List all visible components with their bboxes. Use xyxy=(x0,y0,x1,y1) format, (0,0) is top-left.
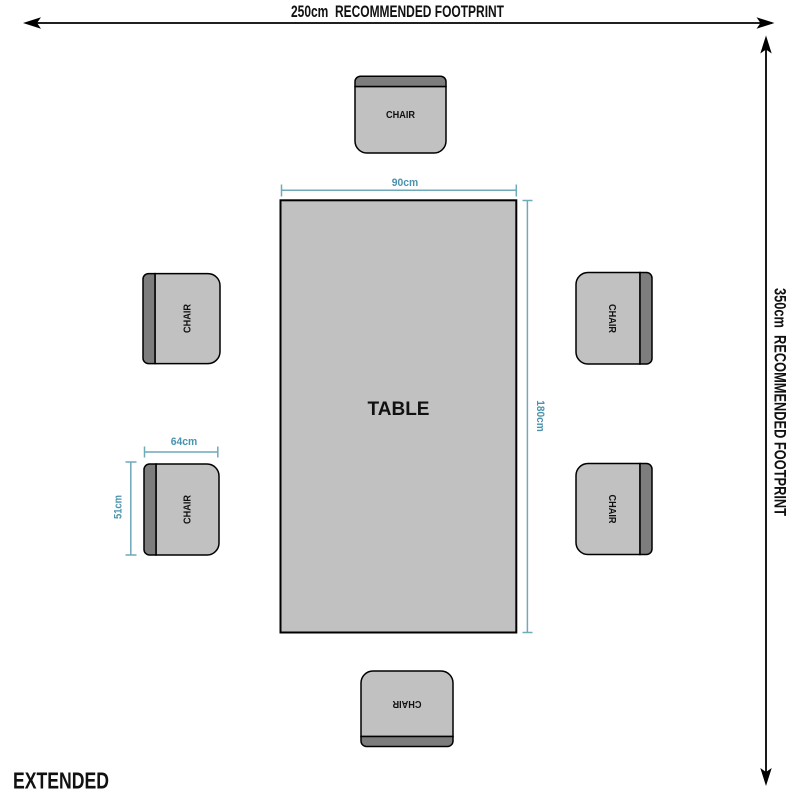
svg-text:EXTENDED: EXTENDED xyxy=(13,768,109,794)
svg-text:TABLE: TABLE xyxy=(368,398,430,420)
svg-text:180cm: 180cm xyxy=(534,400,546,432)
svg-text:90cm: 90cm xyxy=(392,177,419,189)
svg-text:CHAIR: CHAIR xyxy=(606,495,618,524)
svg-text:CHAIR: CHAIR xyxy=(386,109,415,121)
svg-text:CHAIR: CHAIR xyxy=(392,698,421,710)
svg-text:350cm RECOMMENDED FOOTPRINT: 350cm RECOMMENDED FOOTPRINT xyxy=(771,288,789,516)
svg-text:CHAIR: CHAIR xyxy=(182,495,194,524)
svg-text:51cm: 51cm xyxy=(113,495,125,519)
svg-text:250cm RECOMMENDED FOOTPRINT: 250cm RECOMMENDED FOOTPRINT xyxy=(291,3,504,21)
svg-text:64cm: 64cm xyxy=(171,436,198,448)
svg-text:CHAIR: CHAIR xyxy=(182,304,194,333)
svg-text:CHAIR: CHAIR xyxy=(606,304,618,333)
